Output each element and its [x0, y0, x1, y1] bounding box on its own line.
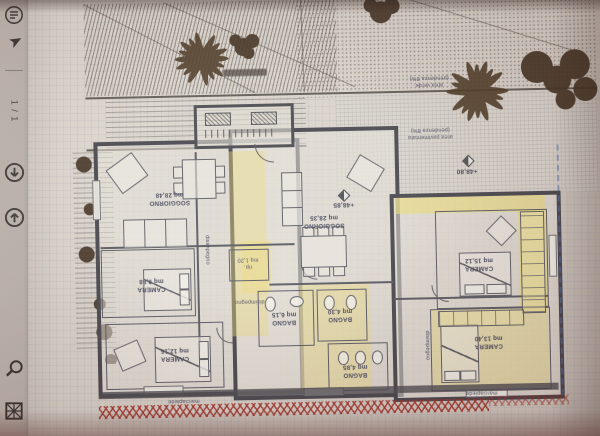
chair-symbol — [215, 182, 225, 194]
reader-menu-icon[interactable] — [0, 4, 28, 26]
page-indicator: 1 / 1 — [9, 100, 19, 123]
room-label-bagno-right: BAGNO mq 4,85 — [343, 363, 368, 379]
site-label-marciapiede-left: marciapiede — [168, 397, 200, 404]
cursor-pointer-icon[interactable] — [0, 30, 28, 52]
entry-steps — [205, 129, 275, 138]
survey-lines — [83, 0, 585, 96]
chair-symbol — [303, 267, 315, 277]
plan-canvas[interactable]: SOGGIORNO mq 28,48 SOGGIORNO mq 28,35 CA… — [28, 0, 600, 436]
site-label-area-pavimentata: area pavimentata (pendenza 8%) — [408, 126, 453, 140]
room-label-disimpegno-right: disimpegno — [423, 331, 430, 361]
window-symbol — [92, 180, 101, 220]
entrance-porch — [194, 103, 295, 149]
dining-table-symbol — [300, 235, 347, 268]
palm-tree-symbol — [174, 31, 229, 87]
planter-symbol — [205, 112, 231, 126]
viewer-toolbar: 1 / 1 — [0, 0, 28, 436]
pattern-fill-icon[interactable] — [0, 398, 28, 424]
level-mark-right: +48,80 — [456, 166, 477, 174]
chair-symbol — [318, 266, 330, 276]
room-label-camera-mid-left: CAMERA mq 9,88 — [137, 277, 166, 293]
room-label-bagno-left: BAGNO mq 6,15 — [272, 310, 297, 326]
wardrobe-symbol — [438, 309, 524, 327]
room-label-camera-bottom-left: CAMERA mq 12,16 — [160, 347, 189, 363]
window-symbol — [548, 235, 557, 277]
previous-page-icon[interactable] — [0, 205, 28, 229]
zoom-icon[interactable] — [0, 356, 28, 382]
photographed-screen: 1 / 1 — [0, 0, 600, 436]
floor-plan-drawing: SOGGIORNO mq 28,48 SOGGIORNO mq 28,35 CA… — [0, 0, 600, 436]
toolbar-divider — [5, 70, 23, 71]
room-label-soggiorno-center: SOGGIORNO mq 28,35 — [304, 213, 345, 229]
room-label-ripostiglio: rip. mq 1,20 — [237, 256, 258, 270]
bed-symbol — [440, 324, 479, 383]
sofa-symbol — [123, 218, 188, 248]
planter-symbol — [251, 111, 277, 125]
room-label-disimpegno-left: disimpegno — [203, 235, 210, 265]
wardrobe-symbol — [520, 211, 546, 313]
chair-symbol — [173, 166, 183, 178]
illegible-hedge-label — [223, 69, 267, 77]
room-label-camera-top-right: CAMERA mq 15,12 — [465, 256, 494, 272]
room-label-soggiorno-left: SOGGIORNO mq 28,48 — [149, 191, 190, 207]
palm-tree-symbol — [446, 60, 509, 123]
next-page-icon[interactable] — [0, 160, 28, 184]
sofa-symbol — [281, 172, 303, 226]
room-label-bagno-center: BAGNO mq 4,30 — [328, 307, 353, 323]
chair-symbol — [215, 166, 225, 178]
boundary-red-hatch — [489, 394, 569, 406]
room-label-camera-bottom-right: CAMERA mq 13,40 — [474, 334, 503, 350]
chair-symbol — [333, 266, 345, 276]
site-label-area-verde: area verde (pendenza 8%) — [409, 74, 448, 88]
boundary-red-hatch — [99, 398, 489, 419]
room-label-disimpegno-center: disimpegno — [235, 297, 265, 304]
